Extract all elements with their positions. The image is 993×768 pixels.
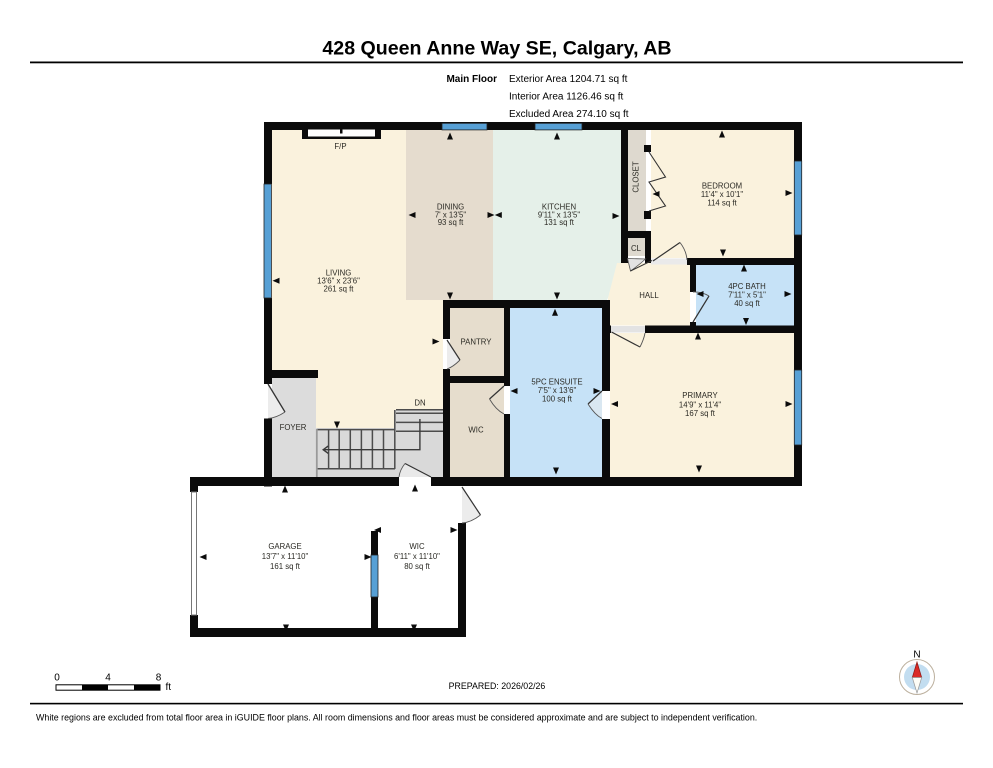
svg-text:HALL: HALL — [639, 291, 659, 300]
svg-text:WIC: WIC — [468, 425, 484, 434]
svg-text:167 sq ft: 167 sq ft — [685, 409, 716, 418]
svg-text:CL: CL — [631, 244, 642, 253]
svg-text:DN: DN — [414, 399, 425, 408]
svg-text:Main Floor: Main Floor — [446, 74, 497, 85]
svg-text:GARAGE: GARAGE — [268, 542, 301, 551]
svg-text:Excluded Area 274.10 sq ft: Excluded Area 274.10 sq ft — [509, 109, 629, 120]
svg-text:261 sq ft: 261 sq ft — [324, 285, 355, 294]
svg-text:WIC: WIC — [409, 542, 425, 551]
svg-text:N: N — [913, 650, 920, 661]
svg-text:8: 8 — [156, 672, 162, 683]
svg-text:F/P: F/P — [334, 142, 346, 151]
svg-text:PRIMARY: PRIMARY — [682, 391, 718, 400]
svg-text:CLOSET: CLOSET — [632, 161, 641, 192]
svg-text:13'7" x 11'10": 13'7" x 11'10" — [262, 552, 309, 561]
svg-text:4: 4 — [105, 672, 111, 683]
svg-text:40 sq ft: 40 sq ft — [734, 299, 760, 308]
svg-text:ft: ft — [166, 682, 172, 693]
svg-text:PANTRY: PANTRY — [461, 337, 493, 346]
svg-text:80 sq ft: 80 sq ft — [404, 562, 430, 571]
svg-text:428 Queen Anne Way SE, Calgary: 428 Queen Anne Way SE, Calgary, AB — [322, 38, 671, 60]
svg-text:PREPARED: 2026/02/26: PREPARED: 2026/02/26 — [449, 681, 546, 691]
svg-text:100 sq ft: 100 sq ft — [542, 394, 573, 403]
svg-text:FOYER: FOYER — [280, 423, 307, 432]
svg-text:Interior Area 1126.46 sq ft: Interior Area 1126.46 sq ft — [509, 92, 624, 103]
svg-text:White regions are excluded fro: White regions are excluded from total fl… — [36, 713, 757, 723]
svg-text:114 sq ft: 114 sq ft — [707, 198, 737, 207]
svg-text:0: 0 — [54, 672, 60, 683]
svg-text:Exterior Area 1204.71 sq ft: Exterior Area 1204.71 sq ft — [509, 74, 628, 85]
svg-text:93 sq ft: 93 sq ft — [438, 218, 464, 227]
svg-text:131 sq ft: 131 sq ft — [544, 218, 575, 227]
svg-text:161 sq ft: 161 sq ft — [270, 562, 301, 571]
svg-text:6'11" x 11'10": 6'11" x 11'10" — [394, 552, 440, 561]
